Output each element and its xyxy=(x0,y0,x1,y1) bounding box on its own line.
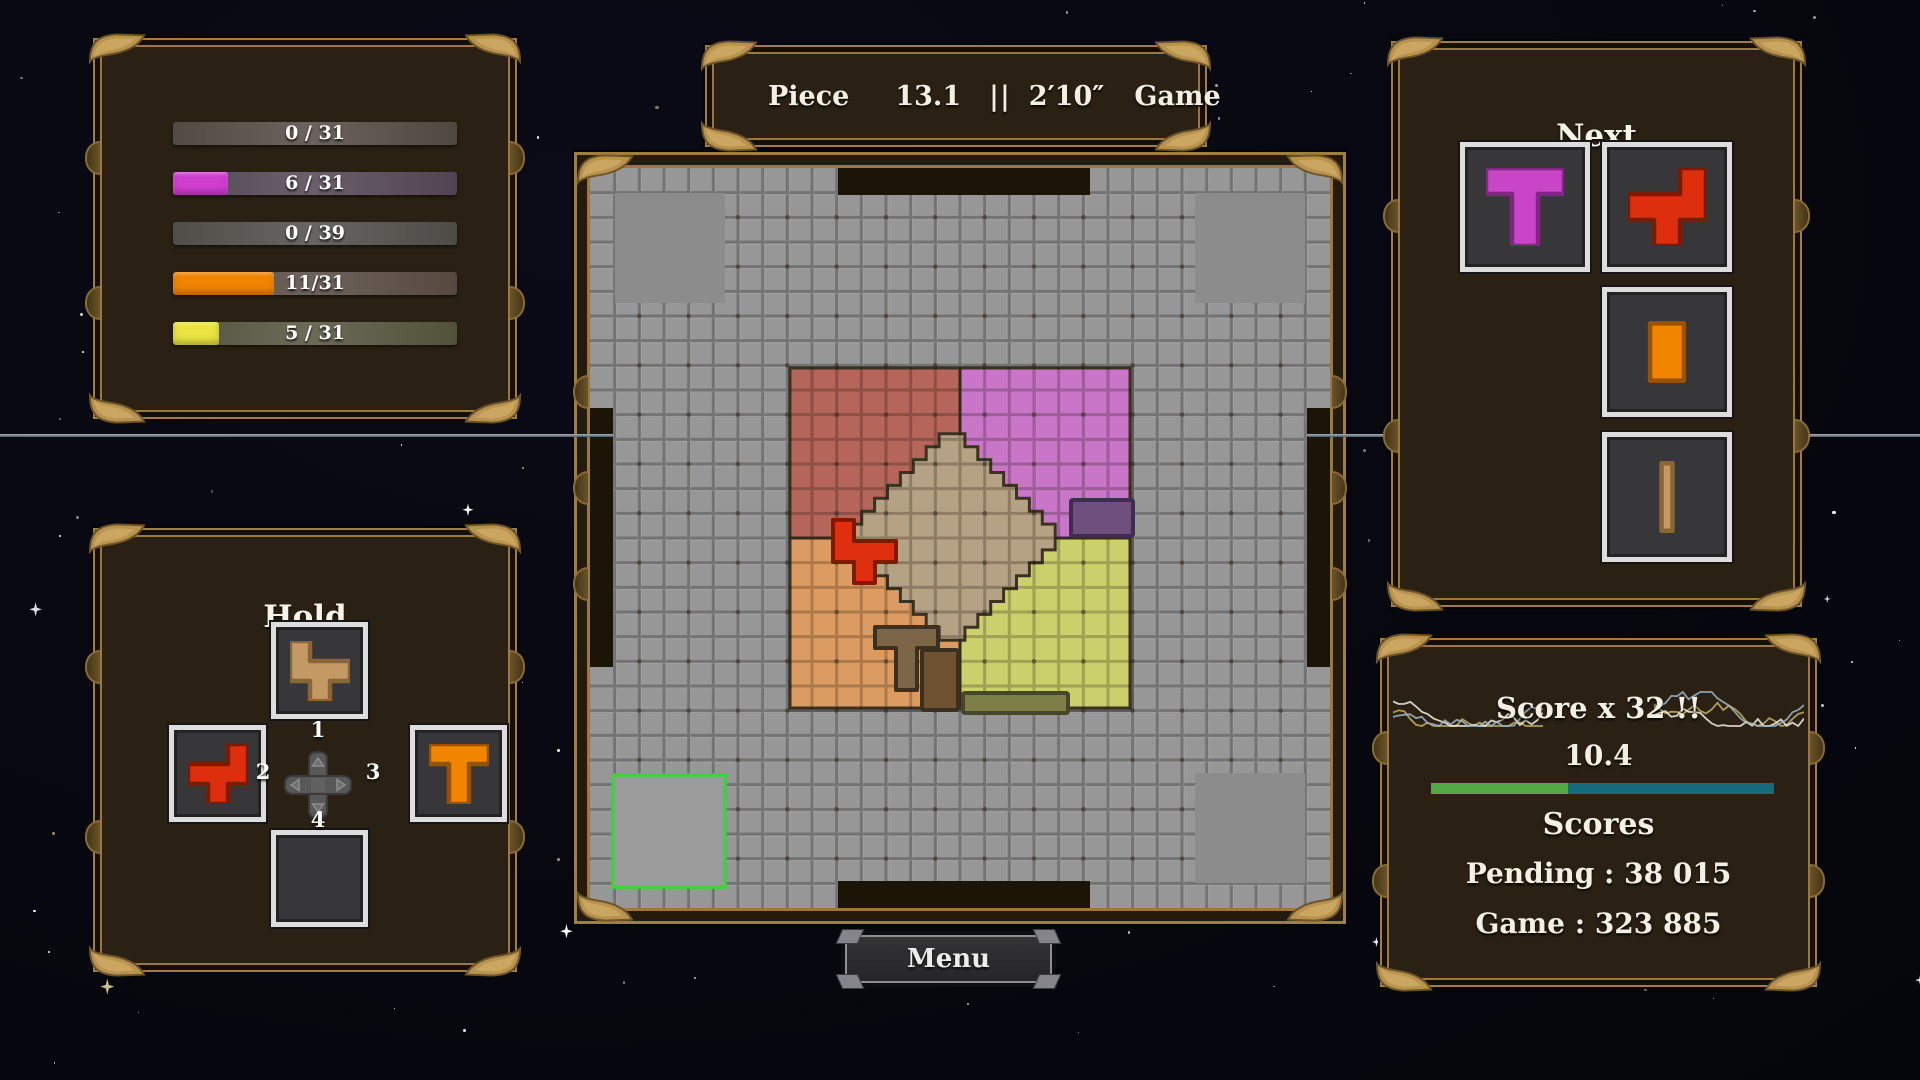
star xyxy=(1713,998,1714,999)
star xyxy=(463,504,474,516)
star xyxy=(1372,937,1381,947)
star xyxy=(1832,511,1835,514)
next-piece-slot-4[interactable] xyxy=(1602,432,1732,562)
objective-progress-bar: 11/31 xyxy=(173,272,457,295)
star xyxy=(59,418,61,420)
bar-count-label: 0 / 31 xyxy=(173,122,457,145)
next-piece-slot-1[interactable] xyxy=(1460,142,1590,272)
scores-heading: Scores xyxy=(1389,807,1808,842)
objective-progress-bar: 0 / 39 xyxy=(173,222,457,245)
game-timer-value: 2′10″ xyxy=(1029,81,1105,112)
star xyxy=(58,212,59,213)
s-piece-icon xyxy=(188,744,248,804)
s-piece-icon xyxy=(290,641,350,701)
hold-slot-up[interactable] xyxy=(271,622,368,719)
game-screen: 0 / 316 / 310 / 3911/315 / 31 Piece 13.1… xyxy=(0,0,1920,1080)
star xyxy=(537,136,540,139)
score-multiplier-text: Score x 32 !! xyxy=(1389,691,1808,725)
star xyxy=(1821,704,1824,707)
score-panel: Score x 32 !! 10.4 Scores Pending : 38 0… xyxy=(1387,645,1810,980)
star xyxy=(138,1012,139,1013)
star xyxy=(522,467,524,469)
bar-count-label: 11/31 xyxy=(173,272,457,295)
menu-button-label: Menu xyxy=(907,944,990,974)
t-piece-icon xyxy=(429,744,489,804)
star xyxy=(560,924,572,938)
star xyxy=(1273,986,1274,987)
star xyxy=(522,682,523,683)
s-piece-icon xyxy=(1628,168,1706,246)
star xyxy=(82,351,84,353)
star xyxy=(100,979,114,995)
next-pieces-panel: Next xyxy=(1398,48,1795,600)
star xyxy=(694,977,696,979)
star xyxy=(1218,117,1220,119)
star xyxy=(1824,595,1831,603)
bar-count-label: 6 / 31 xyxy=(173,172,457,195)
bar-piece-icon xyxy=(1628,458,1706,536)
star xyxy=(557,749,560,752)
star xyxy=(753,140,755,142)
domino-piece-icon xyxy=(1628,313,1706,391)
star xyxy=(463,1029,466,1032)
hold-slot-down[interactable] xyxy=(271,830,368,927)
score-multiplier-value: 10.4 xyxy=(1389,739,1808,772)
dpad-label-2: 2 xyxy=(248,759,278,785)
star xyxy=(967,1003,969,1005)
star xyxy=(1899,640,1900,641)
game-board-frame xyxy=(587,165,1333,911)
dpad-label-4: 4 xyxy=(303,807,333,833)
star xyxy=(52,832,54,834)
button-corner-cap xyxy=(836,929,865,944)
star xyxy=(1419,983,1420,984)
bar-count-label: 5 / 31 xyxy=(173,322,457,345)
piece-timer-label: Piece xyxy=(768,81,849,112)
game-board[interactable] xyxy=(590,168,1330,908)
star xyxy=(1915,974,1920,985)
star xyxy=(80,313,83,316)
piece-timer-value: 13.1 xyxy=(895,81,961,112)
t-piece-icon xyxy=(1486,168,1564,246)
multiplier-bar-fill xyxy=(1431,783,1568,794)
star xyxy=(655,106,658,109)
star xyxy=(1066,11,1068,13)
timer-panel: Piece 13.1 || 2′10″ Game xyxy=(712,52,1200,140)
star xyxy=(1815,679,1816,680)
star xyxy=(29,602,41,616)
star xyxy=(162,37,165,40)
star xyxy=(1078,1032,1079,1033)
objective-progress-bar: 0 / 31 xyxy=(173,122,457,145)
star xyxy=(1855,747,1857,749)
star xyxy=(401,444,402,445)
star xyxy=(1368,539,1371,542)
next-piece-slot-3[interactable] xyxy=(1602,287,1732,417)
multiplier-progress-bar xyxy=(1431,783,1774,794)
objective-progress-bar: 6 / 31 xyxy=(173,172,457,195)
star xyxy=(1566,636,1568,638)
hold-panel: Hold 1 2 3 4 xyxy=(100,535,510,965)
star xyxy=(557,858,560,861)
star xyxy=(1644,989,1646,991)
star xyxy=(1346,201,1348,203)
star xyxy=(572,677,574,679)
star xyxy=(59,535,61,537)
hold-slot-right[interactable] xyxy=(410,725,507,822)
game-timer-label: Game xyxy=(1134,81,1220,112)
next-panel-title: Next xyxy=(1400,118,1793,154)
star xyxy=(54,1062,56,1064)
timer-separator-icon: || xyxy=(989,81,1011,112)
star xyxy=(20,77,23,80)
objectives-panel: 0 / 316 / 310 / 3911/315 / 31 xyxy=(100,45,510,412)
star xyxy=(211,490,213,492)
star xyxy=(76,516,79,519)
pending-score-text: Pending : 38 015 xyxy=(1389,857,1808,890)
star xyxy=(1364,2,1366,4)
star xyxy=(1813,16,1816,19)
star xyxy=(623,981,626,984)
star xyxy=(394,1008,395,1009)
dpad-label-1: 1 xyxy=(303,717,333,743)
star xyxy=(1851,661,1853,663)
bar-count-label: 0 / 39 xyxy=(173,222,457,245)
dpad-label-3: 3 xyxy=(358,759,388,785)
star xyxy=(375,532,376,533)
star xyxy=(1722,5,1723,6)
star xyxy=(1753,10,1756,13)
objective-progress-bar: 5 / 31 xyxy=(173,322,457,345)
game-score-text: Game : 323 885 xyxy=(1389,907,1808,940)
horizon-line-left xyxy=(0,434,613,437)
star xyxy=(1311,91,1312,92)
star xyxy=(33,910,36,913)
next-piece-slot-2[interactable] xyxy=(1602,142,1732,272)
menu-button[interactable]: Menu xyxy=(845,935,1052,983)
star xyxy=(1128,931,1131,934)
star xyxy=(1363,449,1366,452)
star xyxy=(48,951,50,953)
star xyxy=(1350,73,1351,74)
